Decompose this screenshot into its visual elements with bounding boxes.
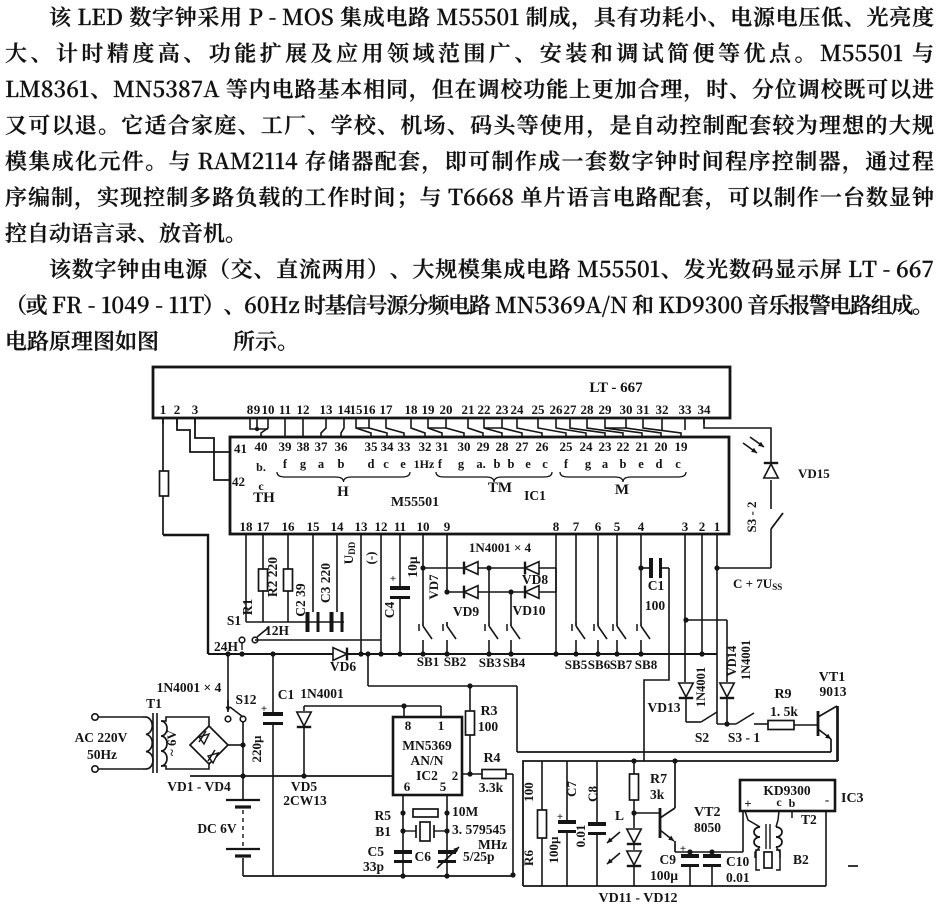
svg-text:2CW13: 2CW13 (283, 793, 327, 808)
svg-text:b: b (620, 457, 627, 471)
svg-text:SB8: SB8 (635, 657, 658, 672)
svg-text:28: 28 (496, 439, 510, 454)
svg-text:B2: B2 (793, 852, 809, 867)
svg-text:15: 15 (350, 402, 364, 417)
svg-text:c: c (776, 795, 782, 809)
svg-text:TH: TH (253, 490, 275, 506)
svg-text:8: 8 (405, 718, 412, 733)
svg-text:36: 36 (335, 439, 349, 454)
svg-text:1N4001 × 4: 1N4001 × 4 (157, 680, 222, 695)
svg-text:10: 10 (417, 519, 430, 534)
svg-text:R2 220: R2 220 (265, 557, 280, 597)
svg-text:C2 39: C2 39 (293, 583, 308, 617)
svg-text:M: M (615, 482, 629, 498)
svg-text:10M: 10M (452, 804, 479, 819)
svg-text:24H: 24H (214, 639, 239, 654)
svg-text:6: 6 (595, 519, 602, 534)
svg-text:32: 32 (419, 439, 432, 454)
svg-text:R4: R4 (483, 751, 500, 766)
svg-text:28: 28 (581, 402, 595, 417)
svg-text:M55501: M55501 (391, 495, 439, 510)
svg-text:g: g (300, 457, 307, 471)
svg-text:38: 38 (297, 439, 311, 454)
svg-text:1Hz: 1Hz (414, 457, 435, 471)
svg-text:SB5: SB5 (565, 657, 588, 672)
svg-text:+: + (680, 843, 686, 855)
svg-text:c: c (675, 457, 681, 471)
svg-text:~ 6V: ~ 6V (164, 729, 179, 756)
svg-text:TM: TM (488, 480, 512, 496)
svg-text:10: 10 (262, 402, 275, 417)
svg-text:12: 12 (297, 402, 310, 417)
svg-text:25: 25 (560, 439, 574, 454)
svg-text:VD5: VD5 (291, 779, 317, 794)
svg-text:27: 27 (564, 402, 578, 417)
svg-text:34: 34 (381, 439, 395, 454)
svg-text:VD7: VD7 (426, 574, 441, 600)
svg-text:S1: S1 (227, 613, 242, 628)
svg-text:12H: 12H (265, 623, 290, 638)
svg-text:30: 30 (458, 439, 471, 454)
svg-text:SB4: SB4 (503, 655, 526, 670)
svg-text:1N4001: 1N4001 (694, 667, 708, 707)
svg-text:UDD: UDD (341, 541, 357, 564)
svg-text:6: 6 (404, 779, 411, 794)
svg-text:0.01: 0.01 (726, 870, 750, 885)
svg-text:e: e (525, 457, 531, 471)
svg-text:c: c (542, 457, 548, 471)
svg-text:b: b (508, 457, 515, 471)
svg-text:22: 22 (617, 439, 630, 454)
svg-text:3. 579545: 3. 579545 (452, 822, 506, 837)
svg-text:g: g (458, 457, 465, 471)
svg-text:f: f (438, 457, 443, 471)
svg-text:1: 1 (438, 718, 445, 733)
svg-text:220µ: 220µ (249, 735, 264, 763)
svg-text:+: + (261, 703, 267, 715)
svg-text:e: e (638, 457, 644, 471)
svg-text:17: 17 (380, 402, 394, 417)
svg-text:VD1 - VD4: VD1 - VD4 (167, 779, 231, 794)
svg-text:d: d (368, 457, 375, 471)
svg-text:11: 11 (279, 402, 291, 417)
svg-text:100: 100 (521, 782, 536, 802)
svg-text:SB1: SB1 (417, 654, 439, 669)
svg-text:2: 2 (452, 768, 459, 783)
svg-text:5: 5 (440, 779, 447, 794)
svg-text:VD9: VD9 (453, 604, 479, 619)
svg-text:40: 40 (255, 439, 268, 454)
svg-text:SB7: SB7 (610, 657, 633, 672)
svg-text:VT2: VT2 (694, 805, 720, 820)
svg-text:+: + (557, 811, 563, 823)
svg-text:1: 1 (160, 402, 167, 417)
svg-text:+: + (744, 796, 751, 811)
svg-text:23: 23 (599, 439, 613, 454)
svg-text:C10: C10 (726, 854, 749, 869)
svg-text:100: 100 (645, 598, 666, 613)
svg-text:R3: R3 (480, 704, 497, 719)
svg-text:13: 13 (320, 402, 334, 417)
svg-text:R5: R5 (375, 808, 392, 823)
svg-text:19: 19 (675, 439, 689, 454)
svg-text:7: 7 (573, 519, 580, 534)
svg-text:9013: 9013 (820, 684, 847, 699)
svg-text:27: 27 (516, 439, 530, 454)
svg-text:1. 5k: 1. 5k (770, 704, 798, 719)
svg-text:2: 2 (174, 402, 181, 417)
svg-text:VD15: VD15 (798, 466, 830, 481)
svg-text:VD10: VD10 (513, 603, 546, 618)
svg-text:21: 21 (636, 439, 649, 454)
svg-text:C + 7USS: C + 7USS (733, 576, 782, 592)
svg-text:KD9300: KD9300 (763, 783, 811, 798)
svg-text:25: 25 (532, 402, 546, 417)
svg-text:c: c (383, 457, 389, 471)
svg-text:16: 16 (282, 519, 296, 534)
svg-text:2: 2 (699, 519, 706, 534)
svg-text:S12: S12 (235, 692, 256, 707)
svg-text:C6: C6 (415, 849, 432, 864)
svg-text:100µ: 100µ (546, 836, 561, 864)
svg-text:T1: T1 (146, 696, 162, 711)
svg-text:SB2: SB2 (444, 654, 466, 669)
svg-text:3: 3 (192, 402, 199, 417)
svg-text:C5: C5 (368, 844, 385, 859)
svg-text:9: 9 (254, 402, 261, 417)
svg-text:34: 34 (698, 402, 712, 417)
svg-text:b: b (494, 457, 501, 471)
svg-text:1: 1 (714, 519, 721, 534)
svg-text:VD13: VD13 (648, 700, 681, 715)
svg-text:17: 17 (257, 519, 271, 534)
svg-text:5/25p: 5/25p (463, 849, 495, 864)
svg-text:R9: R9 (774, 687, 791, 702)
svg-text:39: 39 (279, 439, 293, 454)
svg-text:SB3: SB3 (479, 655, 502, 670)
svg-text:35: 35 (365, 439, 379, 454)
svg-text:f: f (564, 457, 569, 471)
svg-text:a: a (602, 457, 609, 471)
svg-text:8: 8 (553, 519, 560, 534)
svg-text:C1: C1 (278, 687, 295, 702)
svg-text:R7: R7 (650, 772, 667, 787)
svg-text:IC2: IC2 (416, 768, 438, 783)
svg-text:b: b (789, 796, 796, 810)
svg-text:30: 30 (620, 402, 633, 417)
svg-text:14: 14 (331, 519, 345, 534)
svg-text:d: d (656, 457, 663, 471)
svg-text:13: 13 (355, 519, 369, 534)
svg-text:C9: C9 (660, 852, 677, 867)
svg-text:b: b (338, 457, 345, 471)
svg-text:b.: b. (256, 460, 266, 474)
svg-text:H: H (337, 484, 349, 500)
svg-text:MN5369: MN5369 (402, 738, 452, 753)
svg-text:3.3k: 3.3k (479, 780, 504, 795)
svg-text:42: 42 (232, 474, 245, 489)
svg-text:20: 20 (440, 402, 453, 417)
svg-text:S3 - 1: S3 - 1 (728, 730, 761, 745)
svg-text:R6: R6 (521, 850, 536, 866)
svg-text:32: 32 (656, 402, 669, 417)
svg-text:31: 31 (637, 402, 650, 417)
svg-text:19: 19 (422, 402, 436, 417)
svg-text:16: 16 (363, 402, 377, 417)
svg-text:33: 33 (398, 439, 412, 454)
svg-text:(-): (-) (363, 552, 378, 565)
svg-text:11: 11 (394, 519, 406, 534)
svg-text:33p: 33p (363, 859, 384, 874)
svg-text:5: 5 (614, 519, 621, 534)
svg-text:50Hz: 50Hz (87, 747, 117, 762)
svg-text:100: 100 (478, 719, 499, 734)
svg-text:B1: B1 (375, 824, 391, 839)
svg-text:22: 22 (478, 402, 491, 417)
svg-text:26: 26 (536, 439, 550, 454)
svg-text:VD8: VD8 (522, 572, 548, 587)
svg-text:12: 12 (375, 519, 388, 534)
svg-text:1N4001: 1N4001 (739, 640, 753, 680)
svg-text:S3 - 2: S3 - 2 (744, 501, 759, 532)
svg-text:C8: C8 (585, 786, 600, 802)
svg-text:IC1: IC1 (524, 488, 546, 503)
svg-text:L: L (615, 808, 624, 823)
svg-text:18: 18 (240, 519, 254, 534)
svg-text:1N4001: 1N4001 (300, 686, 344, 701)
svg-text:+: + (390, 573, 396, 585)
svg-text:100µ: 100µ (650, 868, 678, 883)
svg-text:DC 6V: DC 6V (197, 821, 237, 836)
svg-text:C3 220: C3 220 (318, 563, 333, 603)
svg-text:15: 15 (307, 519, 321, 534)
svg-text:18: 18 (405, 402, 419, 417)
svg-text:T2: T2 (801, 812, 817, 827)
svg-text:VD11 - VD12: VD11 - VD12 (598, 891, 677, 906)
svg-text:24: 24 (511, 402, 525, 417)
svg-text:1N4001 × 4: 1N4001 × 4 (469, 540, 532, 555)
svg-text:a.: a. (476, 457, 485, 471)
svg-text:33: 33 (679, 402, 693, 417)
svg-text:20: 20 (655, 439, 668, 454)
svg-text:R1: R1 (240, 599, 255, 616)
svg-text:C4: C4 (382, 602, 397, 619)
svg-text:S2: S2 (695, 730, 710, 745)
svg-text:31: 31 (436, 439, 449, 454)
svg-text:VD6: VD6 (330, 659, 356, 674)
svg-text:29: 29 (599, 402, 613, 417)
svg-text:f: f (283, 457, 288, 471)
svg-text:21: 21 (462, 402, 475, 417)
svg-text:g: g (585, 457, 592, 471)
svg-text:8: 8 (247, 402, 254, 417)
svg-text:29: 29 (477, 439, 491, 454)
svg-text:10µ: 10µ (405, 556, 420, 578)
svg-text:AC 220V: AC 220V (75, 730, 128, 745)
svg-text:C1: C1 (648, 578, 665, 593)
svg-text:VD14: VD14 (725, 645, 739, 676)
svg-text:a: a (318, 457, 325, 471)
svg-text:3k: 3k (650, 787, 665, 802)
svg-text:3: 3 (682, 519, 689, 534)
svg-text:C7: C7 (564, 781, 579, 797)
svg-text:LT - 667: LT - 667 (589, 380, 643, 396)
svg-text:9: 9 (444, 519, 451, 534)
svg-text:-: - (825, 792, 829, 807)
svg-text:e: e (400, 457, 406, 471)
svg-text:41: 41 (234, 441, 247, 456)
svg-text:26: 26 (550, 402, 564, 417)
svg-text:37: 37 (315, 439, 329, 454)
svg-text:23: 23 (496, 402, 510, 417)
svg-text:24: 24 (580, 439, 594, 454)
svg-text:SB6: SB6 (588, 657, 611, 672)
svg-text:AN/N: AN/N (411, 753, 444, 768)
svg-text:VT1: VT1 (819, 670, 845, 685)
svg-text:0.01: 0.01 (573, 825, 588, 848)
svg-text:IC3: IC3 (841, 791, 864, 806)
svg-text:4: 4 (638, 519, 645, 534)
svg-text:8050: 8050 (694, 820, 721, 835)
